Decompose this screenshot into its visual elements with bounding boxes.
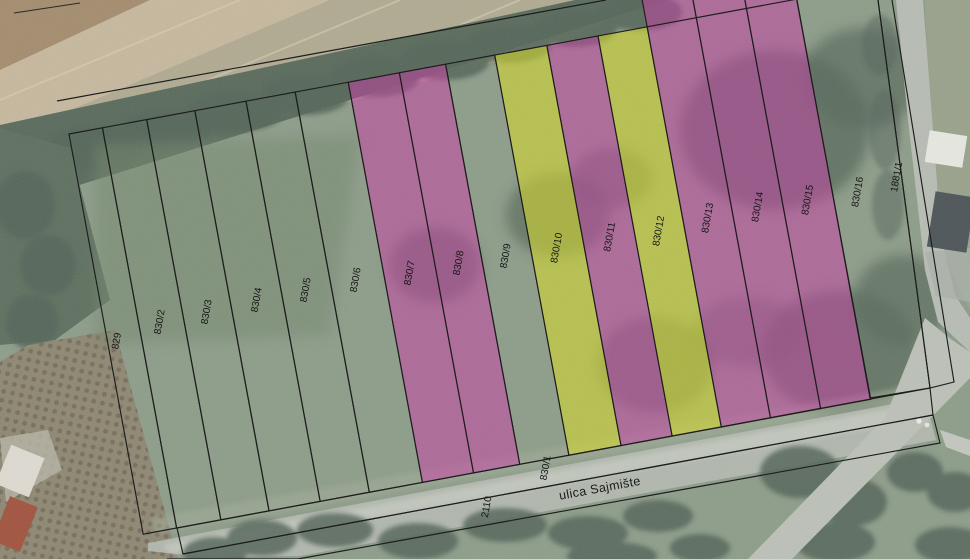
cadastral-map-viewport: 829830/2830/3830/4830/5830/6830/7830/883… [0,0,970,559]
cadastral-map: 829830/2830/3830/4830/5830/6830/7830/883… [0,0,970,559]
